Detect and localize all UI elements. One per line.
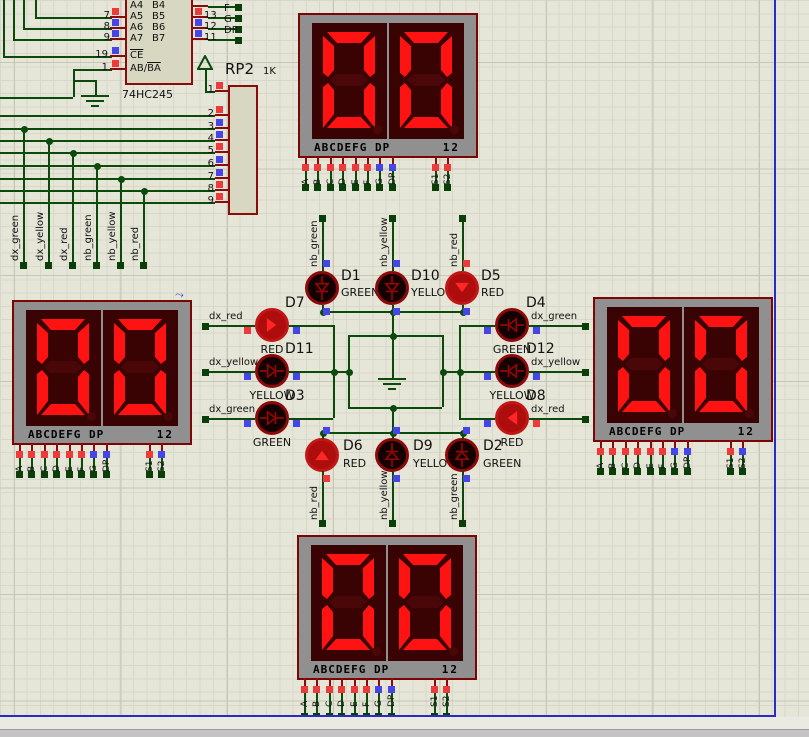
rp2-value: 1K bbox=[263, 66, 276, 77]
display-pin-label: G bbox=[374, 700, 384, 707]
pin-state-indicator bbox=[684, 448, 691, 455]
net-label[interactable]: dx_yellow bbox=[209, 357, 258, 368]
led-D4[interactable]: D4 GREEN bbox=[495, 308, 529, 342]
led-D6[interactable]: D6 RED bbox=[305, 438, 339, 472]
pin-state-indicator bbox=[216, 143, 223, 150]
led-D9[interactable]: D9 YELLOW bbox=[375, 438, 409, 472]
junction-dot bbox=[46, 138, 53, 145]
pin-state-indicator bbox=[393, 260, 400, 267]
rp2-pin bbox=[215, 201, 228, 203]
ic-port-label: A7 bbox=[130, 33, 143, 44]
diode-icon bbox=[310, 443, 334, 467]
pin-state-indicator bbox=[609, 448, 616, 455]
wire-terminal[interactable] bbox=[459, 520, 466, 527]
rp2-pin bbox=[215, 151, 228, 153]
pin-state-indicator bbox=[216, 156, 223, 163]
led-body[interactable] bbox=[495, 401, 529, 435]
wire-segment[interactable] bbox=[81, 95, 109, 97]
wire-terminal[interactable] bbox=[41, 471, 48, 478]
pin-state-indicator bbox=[195, 19, 202, 26]
led-body[interactable] bbox=[255, 354, 289, 388]
net-label[interactable]: nb_yellow bbox=[379, 217, 390, 267]
decimal-point bbox=[745, 409, 754, 418]
pin-state-indicator bbox=[216, 131, 223, 138]
wire-segment[interactable] bbox=[96, 165, 98, 264]
diode-icon bbox=[500, 359, 524, 383]
display-pin-label: B bbox=[312, 701, 322, 707]
wire-terminal[interactable] bbox=[389, 184, 396, 191]
display-segment-label: ABCDEFG DP bbox=[609, 425, 685, 438]
led-color-label: GREEN bbox=[483, 457, 521, 470]
led-color-label: RED bbox=[343, 457, 366, 470]
pin-state-indicator bbox=[352, 164, 359, 171]
pin-state-indicator bbox=[339, 164, 346, 171]
pin-state-indicator bbox=[484, 373, 491, 380]
pin-state-indicator bbox=[389, 164, 396, 171]
ic-port-label: B4 bbox=[152, 0, 165, 11]
wire-segment[interactable] bbox=[392, 335, 394, 378]
wire-terminal[interactable] bbox=[314, 184, 321, 191]
wire-terminal[interactable] bbox=[319, 520, 326, 527]
wire-terminal[interactable] bbox=[16, 471, 23, 478]
wire-terminal[interactable] bbox=[140, 262, 147, 269]
wire-terminal[interactable] bbox=[235, 4, 242, 11]
wire-terminal[interactable] bbox=[684, 468, 691, 475]
pin-state-indicator bbox=[659, 448, 666, 455]
digit-cell bbox=[684, 307, 759, 423]
led-body[interactable] bbox=[495, 308, 529, 342]
wire-terminal[interactable] bbox=[103, 471, 110, 478]
ic-pin bbox=[110, 55, 125, 57]
wire-terminal[interactable] bbox=[45, 262, 52, 269]
net-label[interactable]: dx_green bbox=[531, 311, 577, 322]
ic-port-label: A5 bbox=[130, 11, 143, 22]
pin-state-indicator bbox=[363, 686, 370, 693]
rp2-pin bbox=[215, 139, 228, 141]
wire-terminal[interactable] bbox=[352, 184, 359, 191]
pin-state-indicator bbox=[443, 686, 450, 693]
rp2-pin bbox=[215, 114, 228, 116]
pin-state-indicator bbox=[112, 8, 119, 15]
wire-segment[interactable] bbox=[143, 190, 145, 264]
ic-dir-label: AB/BA bbox=[130, 63, 161, 74]
pin-state-indicator bbox=[375, 686, 382, 693]
net-label[interactable]: nb_red bbox=[130, 227, 141, 261]
pin-state-indicator bbox=[671, 448, 678, 455]
wire-segment[interactable] bbox=[86, 100, 104, 102]
wire-terminal[interactable] bbox=[78, 471, 85, 478]
wire-segment[interactable] bbox=[0, 97, 73, 99]
pin-number: 9 bbox=[196, 195, 214, 206]
pin-state-indicator bbox=[533, 420, 540, 427]
wire-segment[interactable] bbox=[0, 190, 215, 192]
wire-segment[interactable] bbox=[388, 388, 396, 390]
ic-ce-label: CE bbox=[130, 50, 143, 61]
wire-terminal[interactable] bbox=[609, 468, 616, 475]
display-pin-row: ABCDEFGDPS1S2 bbox=[14, 443, 194, 487]
display-pin-label: D bbox=[337, 700, 347, 707]
wire-terminal[interactable] bbox=[659, 468, 666, 475]
diode-icon bbox=[260, 406, 284, 430]
net-label[interactable]: nb_yellow bbox=[379, 470, 390, 520]
display-index-label: 12 bbox=[443, 141, 460, 154]
wire-segment[interactable] bbox=[120, 178, 122, 264]
net-label[interactable]: nb_yellow bbox=[107, 211, 118, 261]
junction-dot bbox=[21, 126, 28, 133]
seven-seg-display-west[interactable]: ABCDEFG DP 12 ABCDEFGDPS1S2 bbox=[12, 300, 192, 445]
wire-terminal[interactable] bbox=[671, 468, 678, 475]
pin-state-indicator bbox=[16, 451, 23, 458]
wire-terminal[interactable] bbox=[202, 369, 209, 376]
net-label[interactable]: nb_green bbox=[449, 473, 460, 520]
digit-cell bbox=[311, 545, 386, 661]
pin-state-indicator bbox=[244, 327, 251, 334]
seven-seg-display-south[interactable]: ABCDEFG DP 12 ABCDEFGDPS1S2 bbox=[297, 535, 477, 680]
rp2-ref: RP2 bbox=[225, 60, 254, 78]
ic-pin bbox=[110, 27, 125, 29]
display-segment-label: ABCDEFG DP bbox=[314, 141, 390, 154]
digit-zero bbox=[320, 29, 378, 131]
led-D7[interactable]: D7 RED bbox=[255, 308, 289, 342]
wire-terminal[interactable] bbox=[327, 184, 334, 191]
pin-state-indicator bbox=[293, 327, 300, 334]
wire-terminal[interactable] bbox=[582, 323, 589, 330]
diode-icon bbox=[450, 276, 474, 300]
net-label[interactable]: dx_red bbox=[209, 311, 243, 322]
wire-terminal[interactable] bbox=[339, 184, 346, 191]
digit-cell bbox=[388, 545, 463, 661]
digit-cell bbox=[103, 310, 178, 426]
pin-state-indicator bbox=[484, 327, 491, 334]
wire-segment[interactable] bbox=[0, 140, 215, 142]
pin-state-indicator bbox=[158, 451, 165, 458]
wire-segment[interactable] bbox=[3, 0, 5, 56]
pin-number: 3 bbox=[196, 121, 214, 132]
led-D3[interactable]: D3 GREEN bbox=[255, 401, 289, 435]
pin-number: 5 bbox=[196, 145, 214, 156]
junction-dot bbox=[331, 369, 338, 376]
wire-terminal[interactable] bbox=[53, 471, 60, 478]
display-pin-row: ABCDEFGDPS1S2 bbox=[595, 440, 775, 484]
wire-terminal[interactable] bbox=[235, 15, 242, 22]
wire-segment[interactable] bbox=[23, 0, 25, 28]
digit-cell bbox=[607, 307, 682, 423]
led-color-label: GREEN bbox=[239, 436, 305, 449]
led-ref: D2 bbox=[483, 438, 503, 454]
net-label[interactable]: nb_red bbox=[449, 233, 460, 267]
net-label[interactable]: G bbox=[224, 14, 232, 25]
pin-state-indicator bbox=[112, 30, 119, 37]
led-ref: D7 bbox=[285, 295, 305, 311]
wire-segment[interactable] bbox=[0, 178, 215, 180]
pin-state-indicator bbox=[323, 260, 330, 267]
led-D10[interactable]: D10 YELLOW bbox=[375, 271, 409, 305]
pin-state-indicator bbox=[216, 119, 223, 126]
junction-dot bbox=[440, 369, 447, 376]
pin-state-indicator bbox=[216, 181, 223, 188]
wire-segment[interactable] bbox=[0, 152, 215, 154]
ic-port-label: A4 bbox=[130, 0, 143, 11]
led-ref: D12 bbox=[526, 341, 555, 357]
decimal-point bbox=[87, 412, 96, 421]
pin-number: 1 bbox=[90, 62, 108, 73]
display-pin-label: E bbox=[350, 701, 360, 707]
net-label[interactable]: dx_green bbox=[10, 215, 21, 261]
led-ref: D6 bbox=[343, 438, 363, 454]
wire-segment[interactable] bbox=[13, 0, 15, 39]
pin-number: 1 bbox=[196, 84, 214, 95]
pin-state-indicator bbox=[463, 475, 470, 482]
pin-state-indicator bbox=[103, 451, 110, 458]
diode-icon bbox=[380, 443, 404, 467]
wire-segment[interactable] bbox=[48, 140, 50, 264]
pin-state-indicator bbox=[634, 448, 641, 455]
wire-terminal[interactable] bbox=[364, 184, 371, 191]
led-body[interactable] bbox=[305, 271, 339, 305]
led-D8[interactable]: D8 RED bbox=[495, 401, 529, 435]
ic-port-label: B6 bbox=[152, 22, 165, 33]
led-D5[interactable]: D5 RED bbox=[445, 271, 479, 305]
wire-terminal[interactable] bbox=[582, 369, 589, 376]
wire-terminal[interactable] bbox=[727, 468, 734, 475]
wire-terminal[interactable] bbox=[93, 262, 100, 269]
rp2-pin bbox=[215, 189, 228, 191]
wire-terminal[interactable] bbox=[28, 471, 35, 478]
led-ref: D9 bbox=[413, 438, 433, 454]
net-label[interactable]: dx_yellow bbox=[531, 357, 580, 368]
pin-number: 7 bbox=[92, 10, 110, 21]
pin-state-indicator bbox=[739, 448, 746, 455]
wire-terminal[interactable] bbox=[235, 37, 242, 44]
digit-cell bbox=[389, 23, 464, 139]
wire-terminal[interactable] bbox=[647, 468, 654, 475]
wire-terminal[interactable] bbox=[20, 262, 27, 269]
diode-icon bbox=[500, 406, 524, 430]
pin-number: 7 bbox=[196, 171, 214, 182]
component-anchor-icon: ⤳ bbox=[175, 291, 184, 299]
net-label[interactable]: dx_red bbox=[531, 404, 565, 415]
seven-seg-display-east[interactable]: ABCDEFG DP 12 ABCDEFGDPS1S2 bbox=[593, 297, 773, 442]
display-segment-label: ABCDEFG DP bbox=[313, 663, 389, 676]
rp2-pin bbox=[215, 127, 228, 129]
wire-terminal[interactable] bbox=[202, 323, 209, 330]
pin-state-indicator bbox=[244, 420, 251, 427]
led-body[interactable] bbox=[375, 438, 409, 472]
wire-terminal[interactable] bbox=[444, 184, 451, 191]
net-label[interactable]: DP bbox=[224, 25, 238, 36]
digit-cell bbox=[312, 23, 387, 139]
net-label[interactable]: dx_yellow bbox=[35, 212, 46, 261]
digit-cell bbox=[26, 310, 101, 426]
wire-terminal[interactable] bbox=[622, 468, 629, 475]
pin-state-indicator bbox=[597, 448, 604, 455]
wire-segment[interactable] bbox=[72, 152, 74, 264]
pin-state-indicator bbox=[327, 164, 334, 171]
pin-state-indicator bbox=[112, 47, 119, 54]
wire-terminal[interactable] bbox=[389, 520, 396, 527]
net-label[interactable]: F bbox=[224, 3, 230, 14]
wire-segment[interactable] bbox=[91, 105, 99, 107]
pin-state-indicator bbox=[146, 451, 153, 458]
pin-state-indicator bbox=[323, 427, 330, 434]
pin-state-indicator bbox=[195, 8, 202, 15]
wire-terminal[interactable] bbox=[459, 215, 466, 222]
decimal-point bbox=[373, 125, 382, 134]
led-body[interactable] bbox=[495, 354, 529, 388]
wire-terminal[interactable] bbox=[634, 468, 641, 475]
ic-port-label: B5 bbox=[152, 11, 165, 22]
pin-state-indicator bbox=[533, 373, 540, 380]
pin-state-indicator bbox=[323, 308, 330, 315]
rp2-body[interactable] bbox=[228, 85, 258, 215]
decimal-point bbox=[164, 412, 173, 421]
wire-terminal[interactable] bbox=[158, 471, 165, 478]
ic-port-label: A6 bbox=[130, 22, 143, 33]
wire-segment[interactable] bbox=[0, 115, 215, 117]
pin-number: 6 bbox=[196, 158, 214, 169]
net-label[interactable]: nb_green bbox=[83, 214, 94, 261]
pin-number: 8 bbox=[196, 183, 214, 194]
ic-pin bbox=[110, 16, 125, 18]
pin-state-indicator bbox=[622, 448, 629, 455]
seven-seg-display-north[interactable]: ABCDEFG DP 12 ABCDEFGDPS1S2 bbox=[298, 13, 478, 158]
led-ref: D10 bbox=[411, 268, 440, 284]
pin-state-indicator bbox=[313, 686, 320, 693]
pin-number: 12 bbox=[204, 21, 217, 32]
schematic-canvas[interactable]: A4 A5 A6 A7 B4 B5 B6 B7 CE AB/BA 74HC245… bbox=[0, 0, 809, 737]
led-D11[interactable]: D11 YELLOW bbox=[255, 354, 289, 388]
display-pin-label: S1 bbox=[430, 696, 440, 707]
pin-state-indicator bbox=[28, 451, 35, 458]
pin-state-indicator bbox=[727, 448, 734, 455]
wire-terminal[interactable] bbox=[739, 468, 746, 475]
wire-segment[interactable] bbox=[73, 80, 95, 82]
pin-state-indicator bbox=[338, 686, 345, 693]
wire-terminal[interactable] bbox=[432, 184, 439, 191]
pin-state-indicator bbox=[41, 451, 48, 458]
wire-terminal[interactable] bbox=[90, 471, 97, 478]
wire-segment[interactable] bbox=[383, 383, 401, 385]
ic-pin bbox=[110, 68, 125, 70]
wire-terminal[interactable] bbox=[66, 471, 73, 478]
wire-terminal[interactable] bbox=[597, 468, 604, 475]
pin-state-indicator bbox=[195, 30, 202, 37]
wire-segment[interactable] bbox=[23, 128, 25, 264]
display-pin-row: ABCDEFGDPS1S2 bbox=[300, 156, 480, 200]
wire-segment[interactable] bbox=[378, 378, 406, 380]
wire-terminal[interactable] bbox=[69, 262, 76, 269]
net-label[interactable]: nb_green bbox=[309, 220, 320, 267]
led-body[interactable] bbox=[445, 271, 479, 305]
pin-state-indicator bbox=[351, 686, 358, 693]
led-ref: D3 bbox=[285, 388, 305, 404]
pin-state-indicator bbox=[463, 308, 470, 315]
wire-terminal[interactable] bbox=[202, 416, 209, 423]
led-body[interactable] bbox=[375, 271, 409, 305]
led-ref: D4 bbox=[526, 295, 546, 311]
power-arrow-icon bbox=[197, 55, 213, 71]
display-index-label: 12 bbox=[157, 428, 174, 441]
led-body[interactable] bbox=[255, 308, 289, 342]
pin-state-indicator bbox=[393, 475, 400, 482]
rp2-pin bbox=[215, 90, 228, 92]
wire-segment[interactable] bbox=[73, 69, 75, 97]
junction-dot bbox=[390, 333, 397, 340]
pin-state-indicator bbox=[244, 373, 251, 380]
pin-state-indicator bbox=[216, 106, 223, 113]
ic-port-label: B7 bbox=[152, 33, 165, 44]
junction-dot bbox=[141, 188, 148, 195]
wire-segment[interactable] bbox=[0, 202, 215, 204]
pin-state-indicator bbox=[66, 451, 73, 458]
pin-number: 19 bbox=[90, 49, 108, 60]
pin-number: 13 bbox=[204, 10, 217, 21]
wire-segment[interactable] bbox=[0, 128, 215, 130]
pin-state-indicator bbox=[647, 448, 654, 455]
pin-state-indicator bbox=[112, 19, 119, 26]
diode-icon bbox=[380, 276, 404, 300]
decimal-point bbox=[450, 125, 459, 134]
pin-state-indicator bbox=[90, 451, 97, 458]
wire-terminal[interactable] bbox=[582, 416, 589, 423]
pin-state-indicator bbox=[216, 193, 223, 200]
wire-terminal[interactable] bbox=[389, 215, 396, 222]
wire-terminal[interactable] bbox=[302, 184, 309, 191]
wire-segment[interactable] bbox=[0, 165, 215, 167]
led-D12[interactable]: D12 YELLOW bbox=[495, 354, 529, 388]
led-ref: D5 bbox=[481, 268, 501, 284]
diode-icon bbox=[500, 313, 524, 337]
window-edge bbox=[0, 729, 809, 737]
led-body[interactable] bbox=[255, 401, 289, 435]
rp2-pin bbox=[215, 177, 228, 179]
pin-state-indicator bbox=[463, 427, 470, 434]
pin-state-indicator bbox=[484, 420, 491, 427]
wire-terminal[interactable] bbox=[319, 215, 326, 222]
pin-state-indicator bbox=[432, 164, 439, 171]
pin-state-indicator bbox=[314, 164, 321, 171]
pin-state-indicator bbox=[376, 164, 383, 171]
ic-pin bbox=[110, 38, 125, 40]
pin-state-indicator bbox=[216, 169, 223, 176]
sheet-border-right bbox=[774, 0, 776, 717]
junction-dot bbox=[346, 369, 353, 376]
led-ref: D1 bbox=[341, 268, 361, 284]
led-D1[interactable]: D1 GREEN bbox=[305, 271, 339, 305]
diode-icon bbox=[310, 276, 334, 300]
led-D2[interactable]: D2 GREEN bbox=[445, 438, 479, 472]
wire-segment[interactable] bbox=[35, 0, 37, 17]
net-label[interactable]: nb_red bbox=[309, 486, 320, 520]
wire-terminal[interactable] bbox=[146, 471, 153, 478]
led-body[interactable] bbox=[305, 438, 339, 472]
wire-terminal[interactable] bbox=[376, 184, 383, 191]
junction-dot bbox=[70, 150, 77, 157]
pin-state-indicator bbox=[293, 420, 300, 427]
wire-terminal[interactable] bbox=[117, 262, 124, 269]
display-index-label: 12 bbox=[738, 425, 755, 438]
pin-number: 9 bbox=[92, 32, 110, 43]
wire-segment[interactable] bbox=[95, 80, 97, 95]
net-label[interactable]: dx_red bbox=[59, 227, 70, 261]
wire-segment[interactable] bbox=[208, 6, 238, 8]
pin-state-indicator bbox=[53, 451, 60, 458]
pin-state-indicator bbox=[463, 260, 470, 267]
pin-state-indicator bbox=[444, 164, 451, 171]
led-ref: D11 bbox=[285, 341, 314, 357]
net-label[interactable]: dx_green bbox=[209, 404, 255, 415]
led-body[interactable] bbox=[445, 438, 479, 472]
